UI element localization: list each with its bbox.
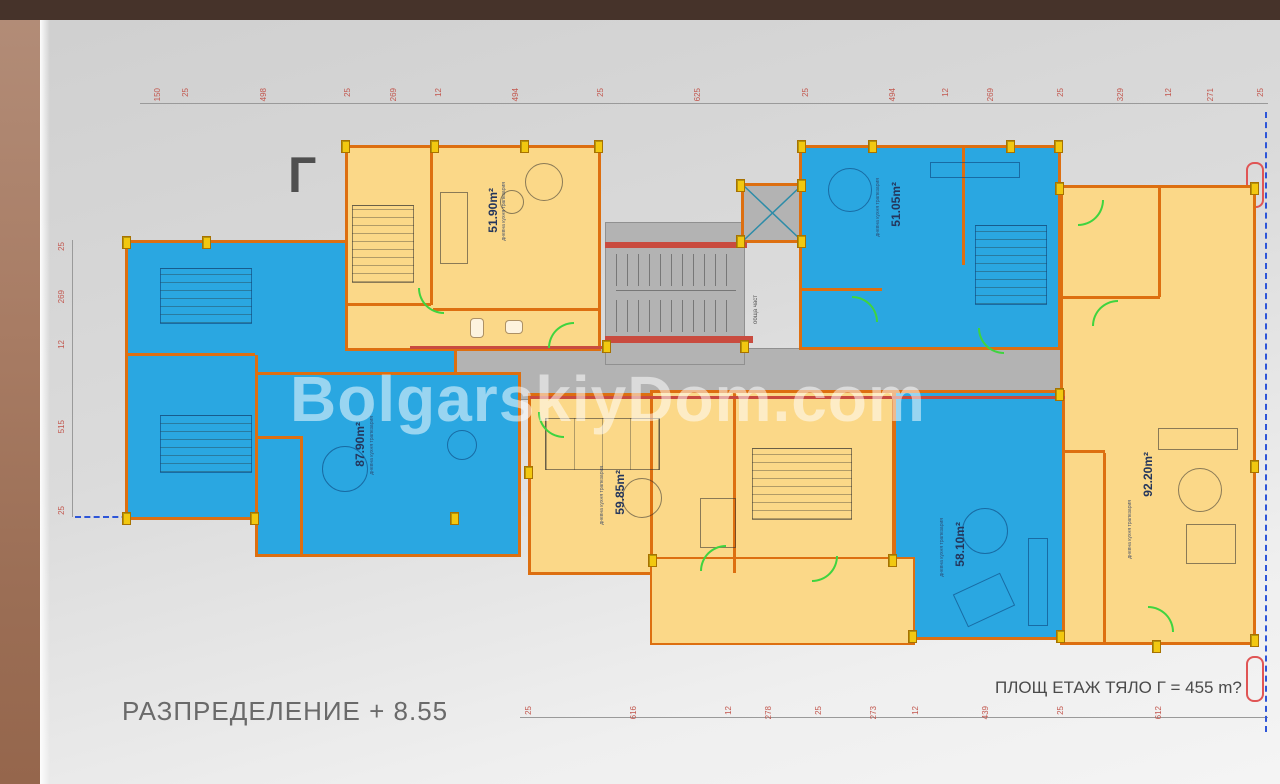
plan-title: РАЗПРЕДЕЛЕНИЕ + 8.55 [122,696,448,727]
dimension-label: 616 [630,706,638,719]
dimension-label: 625 [694,88,702,101]
dimension-label: 12 [1165,88,1173,97]
axis-marker-bottom [1246,656,1264,702]
column-marker [1055,388,1064,401]
sofa [1028,538,1048,626]
apartment-room-label: дневна кухня трапезария [876,178,881,237]
column-marker [868,140,877,153]
dimension-label: 278 [765,706,773,719]
column-marker [797,235,806,248]
boundary-dashed-line-right [1265,112,1267,732]
column-marker [648,554,657,567]
dimension-label: 12 [942,88,950,97]
apartment-area-label: 92.20m² [1142,452,1154,497]
partition-wall [433,308,601,311]
armchair [700,498,736,548]
partition-wall [255,436,302,439]
partition-wall [1060,296,1160,299]
bed [160,415,252,473]
common-area-label: обща част [753,295,759,324]
stair-flight-down [616,300,736,332]
dining-table [1178,468,1222,512]
column-marker [594,140,603,153]
column-marker [908,630,917,643]
apartment-room-label: дневна кухня трапезария [502,182,507,241]
corridor-wall-red [410,346,605,349]
partition-wall [1103,453,1106,643]
column-marker [797,140,806,153]
section-letter: Г [288,150,316,200]
column-marker [736,235,745,248]
column-marker [1250,634,1259,647]
terrace [650,557,915,645]
column-marker [202,236,211,249]
partition-wall [127,353,255,356]
column-marker [430,140,439,153]
dimension-label: 12 [58,340,66,349]
column-marker [250,512,259,525]
apartment-area-label: 51.05m² [890,182,902,227]
partition-wall [800,288,882,291]
dimension-label: 439 [982,706,990,719]
dimension-label: 12 [435,88,443,97]
column-marker [122,236,131,249]
column-marker [736,179,745,192]
dining-table [525,163,563,201]
partition-wall [1062,450,1105,453]
sink [505,320,523,334]
apartment-room-label: дневна кухня трапезария [940,518,945,577]
dimension-label: 25 [182,88,190,97]
column-marker [1250,182,1259,195]
stair-wall-bottom [605,336,753,343]
dimension-label: 494 [512,88,520,101]
column-marker [888,554,897,567]
dimension-label: 269 [987,88,995,101]
sofa [930,162,1020,178]
column-marker [740,340,749,353]
dimension-label: 25 [344,88,352,97]
column-marker [122,512,131,525]
bed [752,448,852,520]
sofa [1158,428,1238,450]
dining-table [622,478,662,518]
dimension-line-top [140,103,1268,104]
elevator-x-icon [744,186,801,240]
column-marker [524,466,533,479]
toilet [470,318,484,338]
stair-flight-up [616,254,736,286]
dimension-label: 269 [58,290,66,303]
dimension-label: 612 [1155,706,1163,719]
partition-wall [300,436,303,554]
cabinet [1186,524,1236,564]
column-marker [520,140,529,153]
dimension-label: 25 [58,242,66,251]
apartment-room-label: дневна кухня трапезария [600,466,605,525]
column-marker [1056,630,1065,643]
apartment-area-label: 58.10m² [954,522,966,567]
dining-table [962,508,1008,554]
left-brown-strip [0,20,40,784]
dimension-label: 515 [58,420,66,433]
partition-wall [347,303,431,306]
apartment-area-label: 59.85m² [614,470,626,515]
bed [975,225,1047,305]
dimension-label: 25 [815,706,823,715]
dimension-label: 25 [802,88,810,97]
dimension-label: 329 [1117,88,1125,101]
column-marker [450,512,459,525]
dimension-label: 269 [390,88,398,101]
column-marker [341,140,350,153]
column-marker [602,340,611,353]
dimension-label: 12 [912,706,920,715]
dimension-label: 498 [260,88,268,101]
dimension-label: 25 [525,706,533,715]
dimension-label: 25 [58,506,66,515]
watermark: BolgarskiyDom.com [290,362,926,436]
column-marker [1054,140,1063,153]
apartment-area-label: 51.90m² [487,188,499,233]
left-strip-highlight [40,20,50,784]
partition-wall [430,147,433,305]
dimension-label: 150 [154,88,162,101]
stair-landing-line [616,290,736,291]
dimension-label: 25 [1257,88,1265,97]
stair-wall-top [605,242,747,248]
bed [160,268,252,324]
partition-wall [1158,187,1161,297]
dimension-label: 25 [597,88,605,97]
bed [352,205,414,283]
wardrobe [440,192,468,264]
column-marker [1152,640,1161,653]
top-brown-bar [0,0,1280,20]
apartment-room-label: дневна кухня трапезария [1128,500,1133,559]
dimension-label: 273 [870,706,878,719]
elevator-shaft [741,183,804,243]
dining-table [828,168,872,212]
column-marker [1250,460,1259,473]
column-marker [1055,182,1064,195]
dimension-label: 12 [725,706,733,715]
floor-area-note: ПЛОЩ ЕТАЖ ТЯЛО Г = 455 m? [995,678,1242,698]
dimension-label: 25 [1057,88,1065,97]
dimension-label: 494 [889,88,897,101]
dimension-label: 25 [1057,706,1065,715]
dimension-line-left [72,240,73,517]
column-marker [1006,140,1015,153]
column-marker [797,179,806,192]
dimension-label: 271 [1207,88,1215,101]
